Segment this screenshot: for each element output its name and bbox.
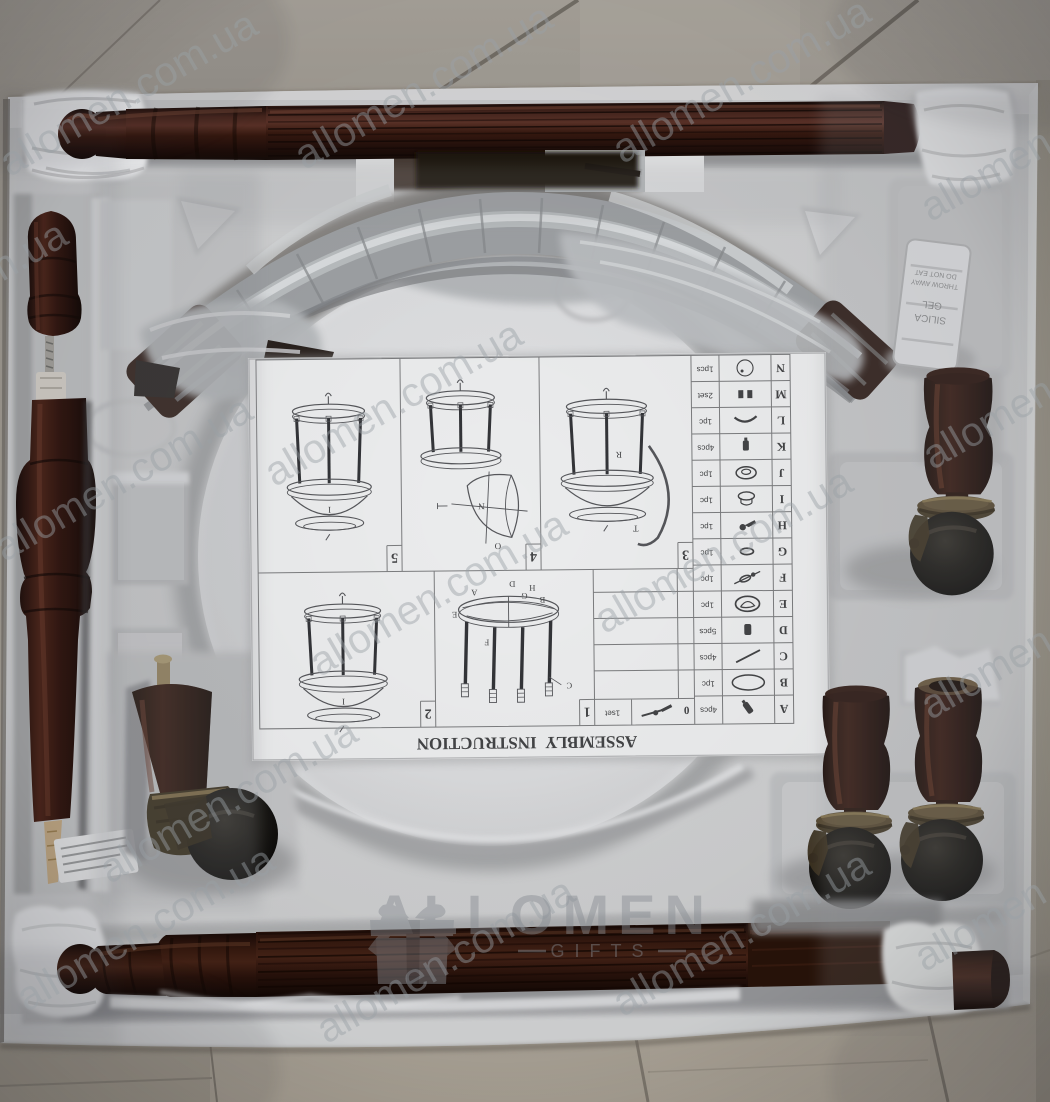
svg-text:GIFTS: GIFTS bbox=[551, 941, 654, 961]
svg-text:ALLOMEN: ALLOMEN bbox=[374, 883, 714, 946]
